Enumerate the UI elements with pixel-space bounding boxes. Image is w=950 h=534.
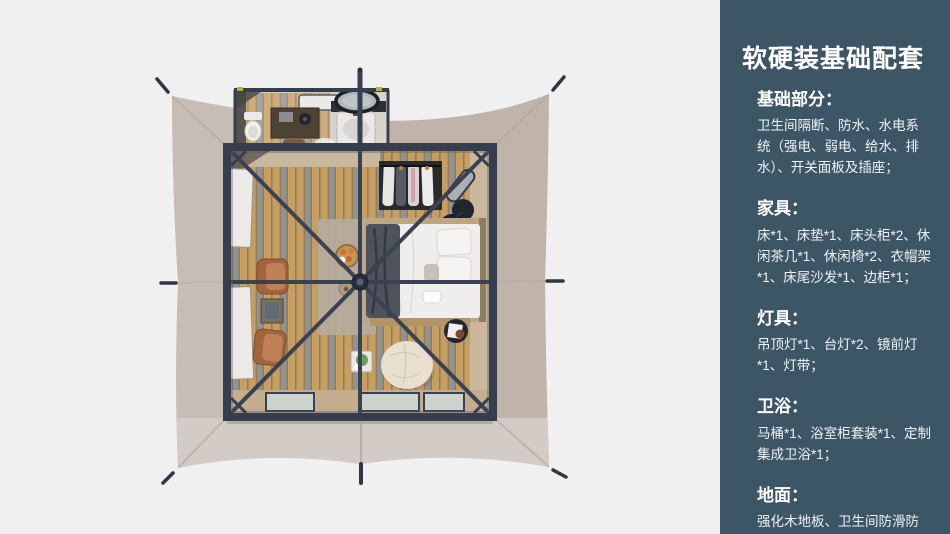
section-body: 吊顶灯*1、台灯*2、镜前灯*1、灯带； xyxy=(757,334,932,376)
section-body: 床*1、床垫*1、床头柜*2、休闲茶几*1、休闲椅*2、衣帽架*1、床尾沙发*1… xyxy=(757,225,932,288)
frame-clip-left xyxy=(237,87,243,91)
section-furniture: 家具： 床*1、床垫*1、床头柜*2、休闲茶几*1、休闲椅*2、衣帽架*1、床尾… xyxy=(757,199,932,287)
section-lighting: 灯具： 吊顶灯*1、台灯*2、镜前灯*1、灯带； xyxy=(757,309,932,376)
slide: 软硬装基础配套 基础部分： 卫生间隔断、防水、水电系统（强电、弱电、给水、排水）… xyxy=(0,0,950,534)
section-bathroom: 卫浴： 马桶*1、浴室柜套装*1、定制集成卫浴*1； xyxy=(757,397,932,464)
round-side-table xyxy=(444,319,468,343)
section-heading: 家具： xyxy=(757,199,932,219)
section-flooring: 地面： 强化木地板、卫生间防滑防潮石塑板； xyxy=(757,486,932,534)
tent-top-view-render xyxy=(0,0,720,534)
clothes-rack xyxy=(379,161,442,210)
section-body: 马桶*1、浴室柜套装*1、定制集成卫浴*1； xyxy=(757,423,932,465)
section-heading: 卫浴： xyxy=(757,397,932,417)
round-mirror xyxy=(336,90,378,112)
bed xyxy=(364,218,486,326)
spec-panel: 软硬装基础配套 基础部分： 卫生间隔断、防水、水电系统（强电、弱电、给水、排水）… xyxy=(720,0,950,534)
panel-sections: 基础部分： 卫生间隔断、防水、水电系统（强电、弱电、给水、排水）、开关面板及插座… xyxy=(742,90,936,534)
headboard xyxy=(479,218,486,322)
section-heading: 灯具： xyxy=(757,309,932,329)
side-shelf xyxy=(261,299,283,323)
glass-doors xyxy=(266,393,464,411)
bathroom-annex xyxy=(234,90,389,152)
panel-title: 软硬装基础配套 xyxy=(742,44,936,74)
section-basics: 基础部分： 卫生间隔断、防水、水电系统（强电、弱电、给水、排水）、开关面板及插座… xyxy=(757,90,932,178)
section-heading: 地面： xyxy=(757,486,932,506)
section-body: 卫生间隔断、防水、水电系统（强电、弱电、给水、排水）、开关面板及插座； xyxy=(757,115,932,178)
section-body: 强化木地板、卫生间防滑防潮石塑板； xyxy=(757,511,932,534)
section-heading: 基础部分： xyxy=(757,90,932,110)
tent-scene-svg xyxy=(0,0,720,534)
leisure-chair-1 xyxy=(257,259,288,294)
frame-clip-right xyxy=(376,87,382,91)
toilet xyxy=(244,112,262,141)
